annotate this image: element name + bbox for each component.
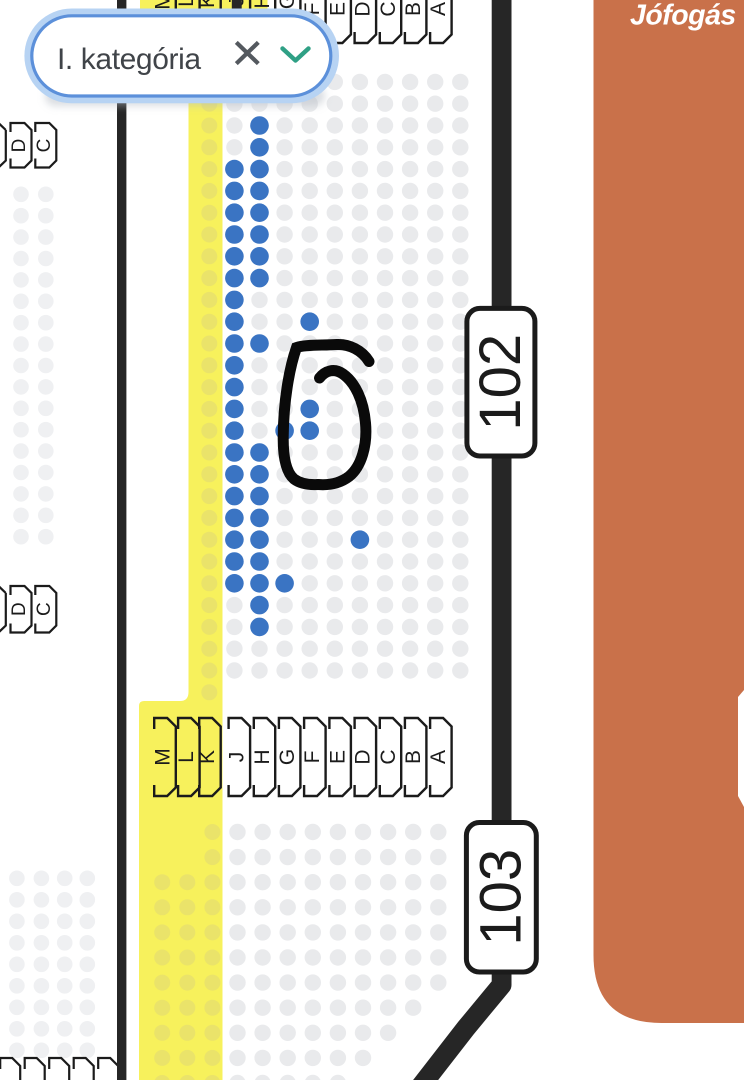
svg-text:H: H — [251, 0, 274, 9]
svg-text:F: F — [301, 751, 324, 764]
svg-text:K: K — [196, 0, 219, 8]
svg-text:G: G — [276, 0, 299, 9]
svg-text:E: E — [326, 2, 349, 16]
svg-text:K: K — [196, 750, 219, 764]
svg-text:D: D — [352, 1, 375, 16]
svg-text:B: B — [402, 2, 425, 16]
svg-text:C: C — [377, 749, 400, 764]
svg-text:D: D — [9, 139, 30, 153]
svg-text:C: C — [34, 139, 55, 153]
svg-text:C: C — [377, 1, 400, 16]
svg-text:M: M — [151, 0, 174, 10]
svg-text:G: G — [276, 749, 299, 765]
svg-text:D: D — [9, 602, 30, 616]
svg-text:Jófogás: Jófogás — [630, 0, 736, 32]
svg-text:E: E — [326, 750, 349, 764]
svg-text:I. kategória: I. kategória — [57, 43, 201, 76]
svg-text:D: D — [352, 749, 375, 764]
svg-text:C: C — [34, 602, 55, 616]
svg-text:A: A — [427, 2, 450, 16]
svg-text:H: H — [251, 749, 274, 764]
svg-text:103: 103 — [468, 849, 533, 946]
svg-text:L: L — [175, 0, 198, 7]
svg-text:A: A — [427, 750, 450, 764]
svg-text:M: M — [151, 748, 174, 766]
svg-text:J: J — [226, 752, 249, 763]
svg-text:L: L — [175, 751, 198, 763]
svg-text:102: 102 — [468, 334, 533, 431]
svg-text:B: B — [402, 750, 425, 764]
